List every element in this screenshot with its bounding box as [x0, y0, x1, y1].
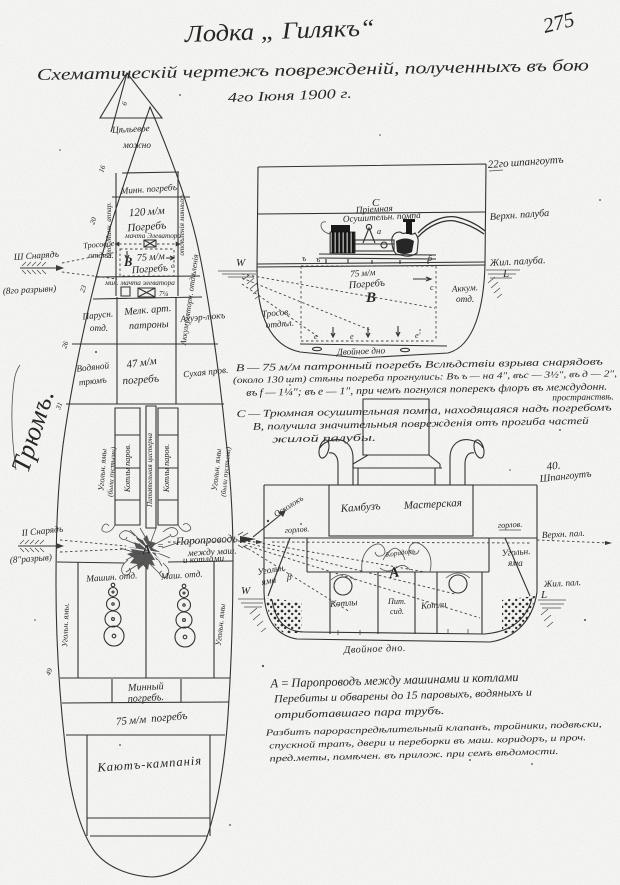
svg-text:отд.: отд. [90, 323, 108, 333]
svg-text:а: а [377, 227, 381, 236]
svg-text:Котлы паров.: Котлы паров. [123, 444, 132, 493]
svg-text:отдѣл.: отдѣл. [88, 251, 113, 260]
svg-text:40.: 40. [546, 460, 561, 473]
svg-text:Угольн. ямы.: Угольн. ямы. [60, 603, 71, 648]
svg-text:B: B [365, 290, 376, 306]
svg-text:7¼: 7¼ [159, 290, 169, 298]
svg-text:c: c [430, 283, 434, 292]
svg-text:W: W [241, 585, 251, 597]
svg-text:Жил. пал.: Жил. пал. [543, 577, 582, 589]
svg-text:Котлы паров.: Котлы паров. [162, 444, 171, 493]
svg-text:е: е [350, 332, 354, 341]
svg-text:погребъ: погребъ [122, 373, 160, 388]
svg-text:W: W [236, 257, 246, 269]
svg-text:β: β [286, 572, 292, 582]
svg-text:мин. мачта элеватора: мин. мачта элеватора [104, 279, 175, 287]
svg-text:мачта Элеватора: мачта Элеватора [124, 232, 181, 240]
svg-text:Котлы: Котлы [329, 597, 358, 609]
svg-text:Угольн.: Угольн. [501, 546, 530, 558]
svg-text:Двойное дно.: Двойное дно. [343, 643, 406, 656]
svg-text:А: А [140, 542, 151, 557]
svg-text:Аккум.: Аккум. [450, 282, 478, 294]
svg-text:120 м/м: 120 м/м [129, 205, 166, 219]
svg-text:Пит.: Пит. [387, 597, 406, 606]
svg-text:отд. Минн. аппар.: отд. Минн. аппар. [105, 202, 113, 258]
svg-text:сид.: сид. [390, 607, 404, 616]
svg-text:ъ: ъ [302, 254, 306, 263]
svg-text:горлов.: горлов. [285, 524, 310, 535]
svg-text:Цѣльевое: Цѣльевое [111, 123, 150, 135]
svg-text:75 м/м: 75 м/м [350, 267, 376, 279]
svg-text:можно: можно [122, 140, 151, 150]
svg-text:Питательная цистерна: Питательная цистерна [146, 433, 154, 508]
svg-text:е′: е′ [415, 331, 421, 340]
svg-text:=: = [157, 541, 164, 552]
svg-text:е: е [314, 332, 318, 341]
svg-text:ъ: ъ [316, 255, 320, 264]
svg-text:патроны: патроны [129, 319, 169, 332]
svg-text:отдѣленія минныхъ: отдѣленія минныхъ [178, 194, 186, 256]
svg-text:горлов.: горлов. [498, 520, 523, 530]
svg-text:яма: яма [507, 558, 523, 568]
svg-text:пространствѣ.: пространствѣ. [552, 391, 614, 402]
svg-text:отд.: отд. [456, 294, 474, 304]
svg-text:Двойное дно: Двойное дно [336, 345, 386, 357]
svg-text:75 м/м: 75 м/м [136, 251, 165, 264]
svg-text:L: L [540, 589, 547, 601]
